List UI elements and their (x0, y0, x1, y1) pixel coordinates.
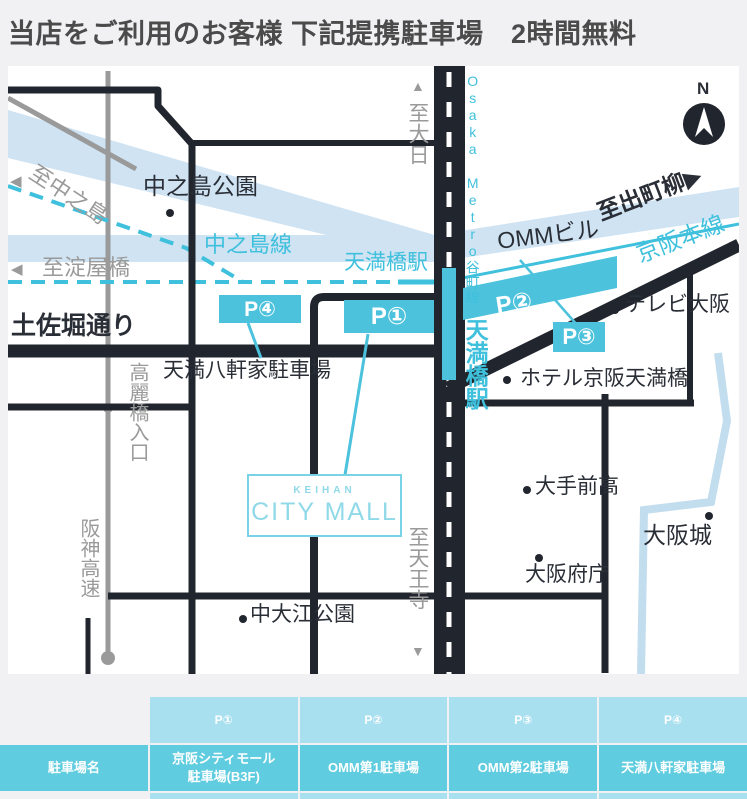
page-title: 当店をご利用のお客様 下記提携駐車場 2時間無料 (8, 12, 637, 51)
arrow-left-icon: ◀ (11, 262, 23, 278)
tenmabashi-station-bar (442, 268, 456, 380)
arrow-up-icon: ▲ (411, 79, 425, 94)
table-header-p4: P④ (599, 697, 747, 743)
table-cell-empty (0, 697, 148, 743)
table-header-p1: P① (150, 697, 298, 743)
city-mall-name: CITY MALL (251, 498, 398, 527)
page-header: 当店をご利用のお客様 下記提携駐車場 2時間無料 (8, 0, 747, 62)
label-tenmabashi-station-metro: 天満橋駅 (344, 252, 428, 274)
label-hanshin-expressway: 阪神高速 (77, 518, 98, 598)
area-map: ◀ 至中之島 ◀ 至淀屋橋 中之島公園 中之島線 天満橋駅 土佐堀通り 天満八軒… (8, 66, 739, 674)
label-otemae-high: 大手前高 (535, 476, 619, 498)
label-tenmabashi-station-keihan: 天満橋駅 (463, 318, 487, 410)
parking-badge-p3: P③ (553, 322, 605, 352)
dot-hotel (503, 376, 511, 384)
arrow-down-icon: ▼ (411, 644, 425, 659)
label-osaka-castle: 大阪城 (643, 523, 712, 547)
dot-pref-office (535, 554, 543, 562)
label-temma-hachikenya-parking: 天満八軒家駐車場 (163, 360, 331, 382)
table-cell-p4-name: 天満八軒家駐車場 (599, 745, 747, 791)
dot-tv-osaka (611, 306, 619, 314)
label-tosabori-street: 土佐堀通り (11, 313, 136, 339)
label-to-tennoji: 至天王寺 (406, 526, 428, 610)
label-nakanoshima-line: 中之島線 (204, 233, 292, 256)
table-cell-p3-name: OMM第2駐車場 (449, 745, 597, 791)
p1-name-line2: 駐車場(B3F) (188, 768, 260, 786)
dot-nakanoshima-park (166, 209, 174, 217)
table-cell-p2-name: OMM第1駐車場 (300, 745, 448, 791)
table-cell-p1-name: 京阪シティモール 駐車場(B3F) (150, 745, 298, 791)
p1-name-line1: 京阪シティモール (172, 750, 275, 768)
label-tv-osaka: テレビ大阪 (625, 294, 730, 316)
label-osaka-pref-office: 大阪府庁 (525, 564, 609, 586)
dot-otemae (523, 486, 531, 494)
dot-osaka-castle (705, 512, 713, 520)
label-naka-oe-park: 中大江公園 (250, 604, 355, 626)
table-header-p2: P② (300, 697, 448, 743)
expressway-end-dot (101, 651, 115, 665)
table-cell-row-label: 駐車場名 (0, 745, 148, 791)
label-osaka-metro-tanimachi-line: Osaka Metro谷町線 (465, 73, 480, 305)
parking-badge-p4: P④ (219, 295, 301, 323)
parking-table: P① P② P③ P④ 駐車場名 京阪シティモール 駐車場(B3F) OMM第1… (0, 697, 747, 799)
arrow-left-icon: ◀ (10, 174, 22, 190)
city-mall-brand: KEIHAN (293, 485, 355, 496)
parking-table-header-row: P① P② P③ P④ (0, 697, 747, 743)
label-to-yodoyabashi: 至淀屋橋 (42, 256, 130, 279)
parking-table-name-row: 駐車場名 京阪シティモール 駐車場(B3F) OMM第1駐車場 OMM第2駐車場… (0, 745, 747, 791)
label-hotel-keihan: ホテル京阪天満橋 (520, 368, 688, 390)
table-header-p3: P③ (449, 697, 597, 743)
parking-badge-p1: P① (344, 300, 434, 333)
keihan-city-mall-box: KEIHAN CITY MALL (247, 474, 402, 537)
dot-naka-oe-park (239, 615, 247, 623)
parking-table-next-row-peek (0, 793, 747, 799)
label-to-dainichi: 至大日 (406, 102, 428, 165)
label-nakanoshima-park: 中之島公園 (143, 174, 258, 198)
compass-north-label: N (697, 80, 709, 98)
label-koraibashi-entrance: 高麗橋入口 (126, 362, 147, 462)
